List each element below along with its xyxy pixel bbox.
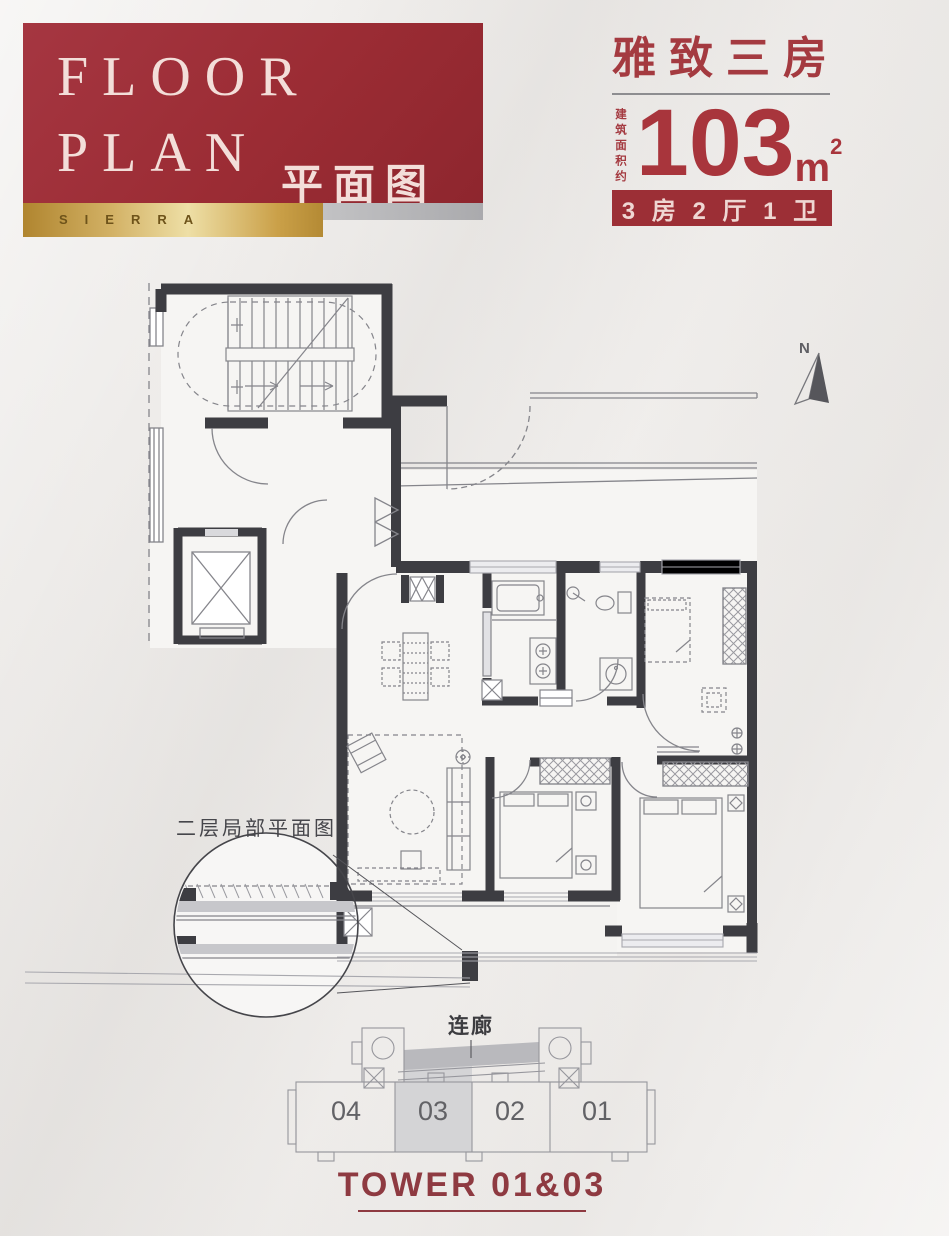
unit-name: 雅致三房 [612,22,840,86]
unit-number-04: 04 [331,1096,361,1127]
area-exponent: 2 [830,136,842,158]
area-unit: m [795,148,831,188]
tower-title-underline [358,1210,586,1212]
detail-note-label: 二层局部平面图 [176,812,337,841]
area-row: 建筑面积约 103 m 2 [612,102,842,190]
unit-number-01: 01 [582,1096,612,1127]
unit-number-02: 02 [495,1096,525,1127]
spec-badge: 3 房 2 厅 1 卫 [612,190,832,226]
title-banner: FLOOR PLAN 平面图 [23,23,483,203]
brand-name: SIERRA [59,212,210,227]
gold-ribbon: SIERRA [23,203,323,237]
tower-title: TOWER 01&03 [338,1166,607,1205]
title-line2: PLAN [57,115,311,191]
north-label: N [799,340,810,357]
title-line1: FLOOR [57,39,311,115]
title-english: FLOOR PLAN [57,39,311,191]
floor-plan-poster: FLOOR PLAN 平面图 SIERRA 雅致三房 建筑面积约 103 m 2… [0,0,949,1236]
gray-ribbon [323,203,483,220]
area-value: 103 [636,102,795,184]
north-arrow-icon [795,353,829,404]
unit-number-03: 03 [418,1096,448,1127]
bridge-label: 连廊 [448,1010,494,1040]
area-prefix-vertical: 建筑面积约 [612,108,628,190]
elevator-door [205,529,238,536]
footprint-diagram [288,1028,655,1161]
